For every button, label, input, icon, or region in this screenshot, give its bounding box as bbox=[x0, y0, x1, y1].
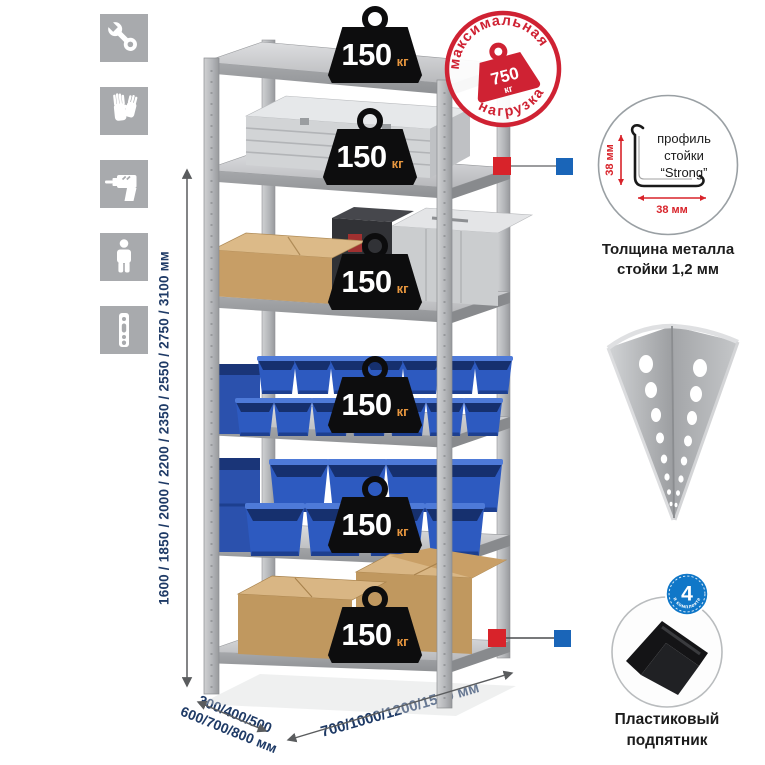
depth-dimension-line bbox=[198, 702, 266, 731]
blue-marker-bottom bbox=[554, 630, 571, 647]
shelf-load-badge: 150кг bbox=[322, 108, 418, 185]
width-dimension-line bbox=[288, 673, 512, 740]
blue-marker-top bbox=[556, 158, 573, 175]
shelf-load-badge: 150кг bbox=[327, 476, 423, 553]
shelf-load-badge: 150кг bbox=[327, 586, 423, 663]
shelf-load-badge: 150кг bbox=[327, 233, 423, 310]
red-marker-top bbox=[493, 157, 511, 175]
shelf-load-badge: 150кг bbox=[327, 6, 423, 83]
max-load-stamp: максимальная нагрузка 750 кг bbox=[440, 6, 566, 132]
included-count-badge: 4 в комплекте bbox=[664, 571, 710, 617]
product-infographic: 150кг 150кг 150кг 150кг 150кг 150кг макс… bbox=[0, 0, 765, 765]
svg-text:4: 4 bbox=[681, 582, 693, 605]
red-marker-bottom bbox=[488, 629, 506, 647]
shelf-load-badge: 150кг bbox=[327, 356, 423, 433]
